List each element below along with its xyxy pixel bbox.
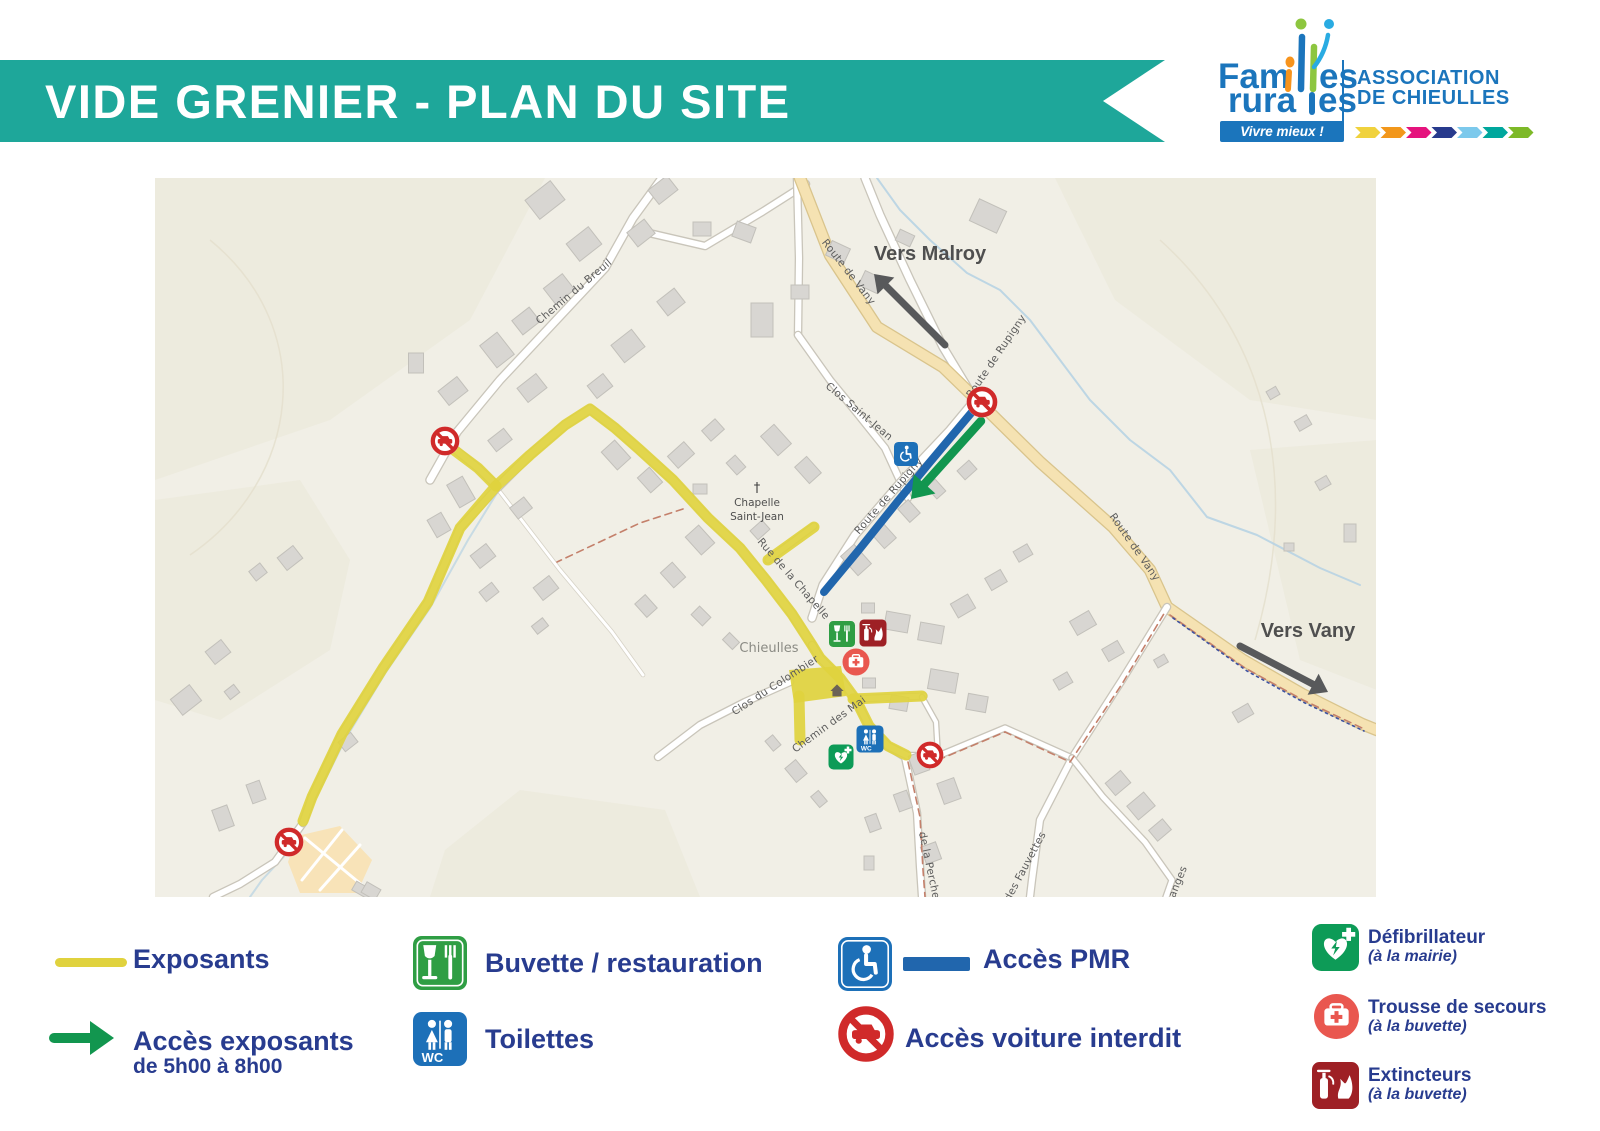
familles-rurales-logo: FamesruraesVivre mieux !ASSOCIATIONDE CH… <box>1185 5 1555 150</box>
site-map: Vers MalroyVers VanyChemin du BreuilClos… <box>155 178 1376 897</box>
svg-text:WC: WC <box>422 1050 444 1065</box>
legend-defibrillateur-sub: (à la mairie) <box>1368 948 1457 966</box>
place-label: Chapelle <box>734 497 780 509</box>
legend-exposants-label: Exposants <box>133 944 270 975</box>
place-label: Saint-Jean <box>730 511 784 523</box>
svg-text:es: es <box>1318 81 1357 120</box>
legend-toilettes-label: Toilettes <box>485 1024 594 1055</box>
header-banner: VIDE GRENIER - PLAN DU SITE <box>0 60 1165 142</box>
legend-pmr-label: Accès PMR <box>983 944 1130 975</box>
logo-color-strip-segment <box>1355 127 1381 138</box>
pmr-wheelchair-icon <box>838 937 892 996</box>
logo-color-strip-segment <box>1406 127 1432 138</box>
logo-color-strip-segment <box>1432 127 1458 138</box>
logo-color-strip-segment <box>1508 127 1534 138</box>
place-label: † <box>754 481 761 496</box>
pmr-route-swatch <box>903 957 970 971</box>
exposants-route-swatch <box>55 958 127 967</box>
logo-tagline: Vivre mieux ! <box>1240 124 1324 139</box>
map-marker-extincteur <box>860 620 887 647</box>
legend-buvette-label: Buvette / restauration <box>485 948 763 979</box>
toilettes-icon: WC <box>413 1012 467 1071</box>
first-aid-kit-icon <box>1314 994 1359 1044</box>
legend-trousse-sub: (à la buvette) <box>1368 1018 1467 1036</box>
legend-trousse-label: Trousse de secours <box>1368 997 1546 1019</box>
association-line1: ASSOCIATION <box>1357 67 1500 89</box>
place-label: Chieulles <box>739 641 798 656</box>
legend-acces-exposants-hours: de 5h00 à 8h00 <box>133 1055 282 1079</box>
logo-color-strip-segment <box>1457 127 1483 138</box>
logo-rurales: rura <box>1228 81 1297 120</box>
legend-extincteurs-sub: (à la buvette) <box>1368 1086 1467 1104</box>
map-marker-nocar <box>917 742 944 769</box>
no-car-icon <box>838 1006 894 1067</box>
legend-acces-exposants-label: Accès exposants <box>133 1026 354 1057</box>
map-marker-wc: WC <box>857 726 884 753</box>
map-marker-nocar <box>967 387 998 418</box>
svg-text:WC: WC <box>861 746 872 753</box>
map-marker-nocar <box>431 427 460 456</box>
defibrillator-icon <box>1312 924 1359 976</box>
map-marker-buvette <box>829 621 855 647</box>
map-marker-pmr <box>894 442 918 466</box>
page: VIDE GRENIER - PLAN DU SITE FamesruraesV… <box>0 0 1600 1131</box>
fire-extinguisher-icon <box>1312 1062 1359 1114</box>
legend-voiture-interdit-label: Accès voiture interdit <box>905 1023 1181 1054</box>
association-line2: DE CHIEULLES <box>1357 87 1510 109</box>
direction-label: Vers Malroy <box>874 243 987 265</box>
logo-color-strip-segment <box>1483 127 1509 138</box>
logo-graphic: FamesruraesVivre mieux !ASSOCIATIONDE CH… <box>1185 5 1555 150</box>
page-title: VIDE GRENIER - PLAN DU SITE <box>45 60 791 142</box>
legend-defibrillateur-label: Défibrillateur <box>1368 927 1485 949</box>
map-marker-firstaid <box>843 649 870 676</box>
acces-exposants-arrow-icon <box>48 1018 120 1063</box>
map-marker-defib <box>829 745 854 770</box>
map-marker-nocar <box>275 828 304 857</box>
buvette-icon <box>413 936 467 995</box>
legend-extincteurs-label: Extincteurs <box>1368 1065 1471 1087</box>
direction-label: Vers Vany <box>1261 620 1356 642</box>
logo-color-strip-segment <box>1381 127 1407 138</box>
